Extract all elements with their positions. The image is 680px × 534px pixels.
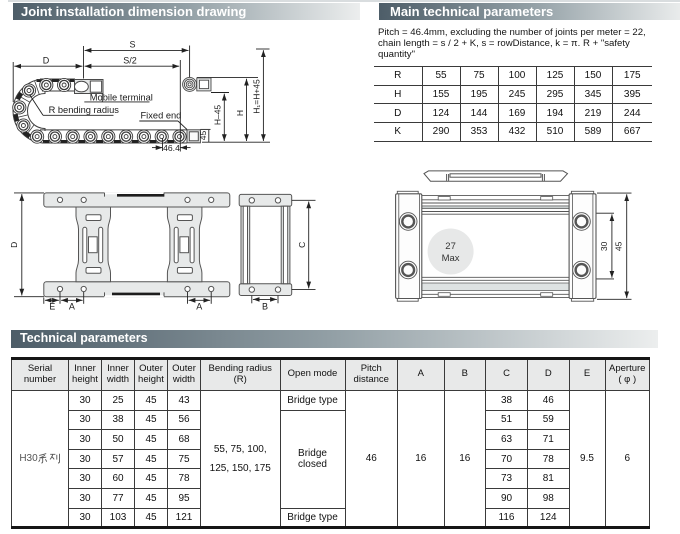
svg-text:A: A (69, 302, 75, 312)
svg-text:D: D (9, 242, 19, 248)
svg-text:H–45: H–45 (213, 105, 223, 126)
svg-text:R bending radius: R bending radius (49, 105, 120, 115)
svg-text:30: 30 (599, 241, 609, 251)
svg-text:45: 45 (198, 131, 208, 141)
svg-text:H: H (235, 110, 245, 116)
svg-text:46.4: 46.4 (163, 143, 180, 153)
svg-text:D: D (43, 56, 50, 66)
svg-text:H₁=H+45: H₁=H+45 (252, 79, 262, 114)
svg-text:Fixed end: Fixed end (141, 111, 182, 121)
svg-text:45: 45 (614, 241, 624, 251)
svg-text:C: C (297, 242, 307, 248)
svg-text:A: A (196, 302, 202, 312)
svg-text:27: 27 (445, 241, 456, 252)
svg-text:Mobile terminal: Mobile terminal (90, 92, 153, 102)
svg-text:B: B (262, 302, 268, 312)
svg-text:Max: Max (442, 253, 460, 264)
svg-text:S: S (129, 39, 135, 49)
svg-text:E: E (49, 302, 55, 312)
svg-text:S/2: S/2 (123, 56, 137, 66)
